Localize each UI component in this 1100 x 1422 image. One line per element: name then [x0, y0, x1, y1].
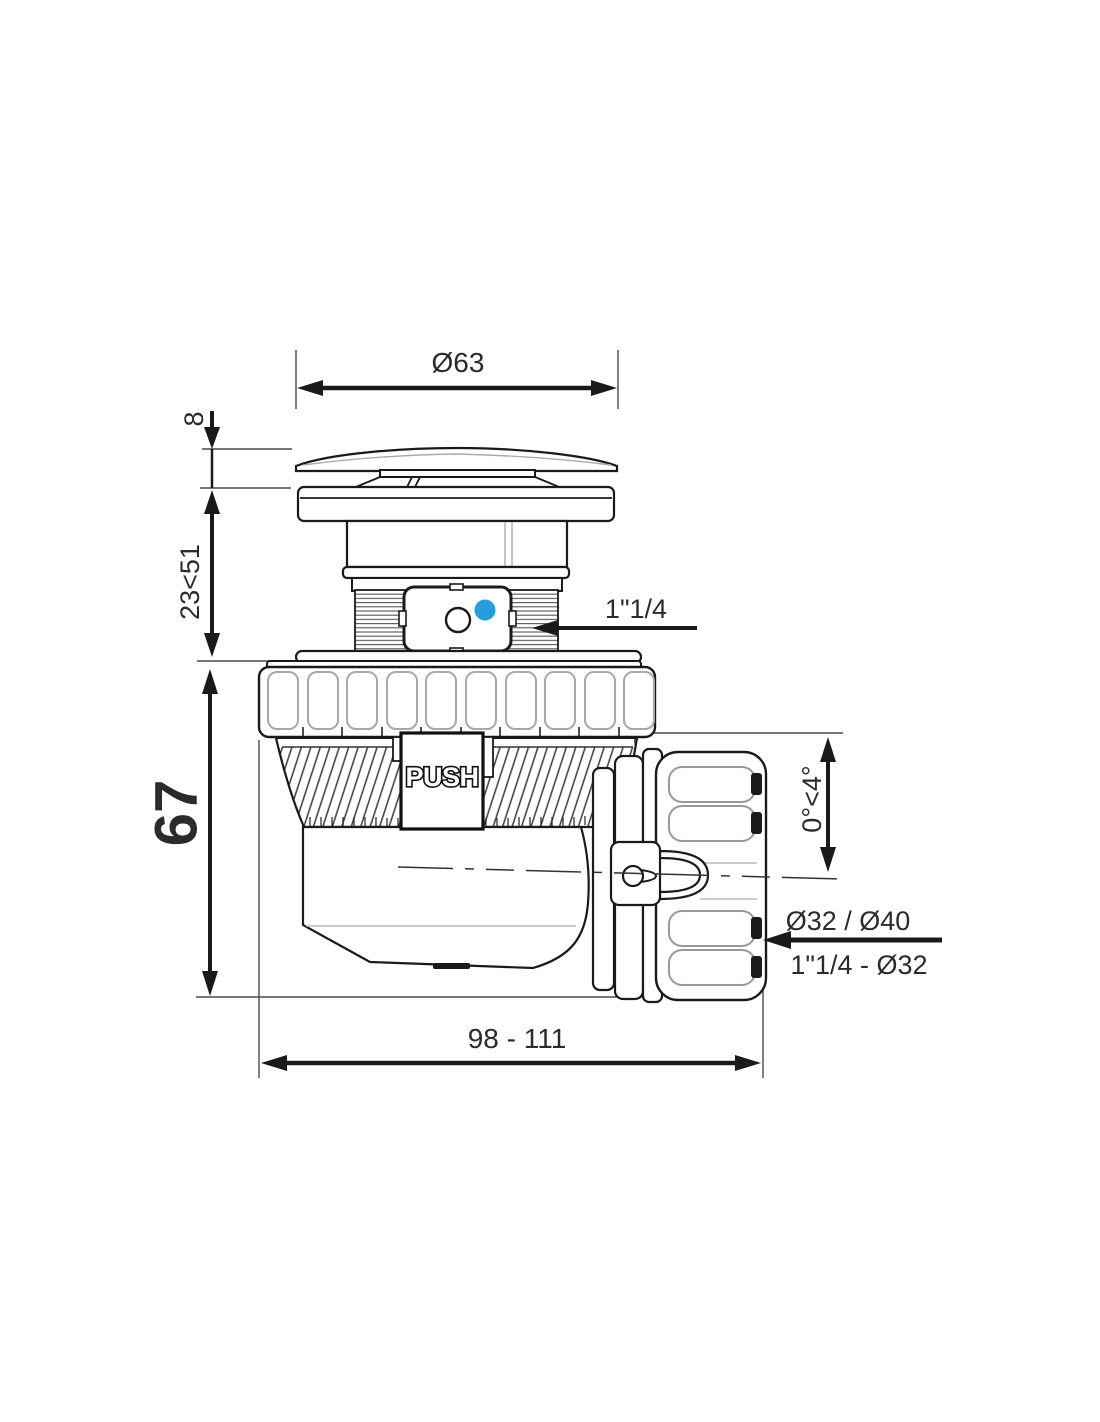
arrowhead-down-icon — [204, 427, 220, 449]
arrowhead-right-icon — [591, 380, 617, 396]
cap-stem-plate — [380, 470, 535, 477]
dim-cap-height-label: 8 — [179, 411, 209, 426]
keyhole-icon — [623, 866, 643, 886]
indicator-blue-dot — [475, 600, 496, 621]
dim-length-range: 98 - 111 — [261, 1023, 761, 1071]
dim-inlet-thread-label: 1"1/4 — [605, 594, 667, 624]
trap-drain-notch — [433, 963, 470, 969]
cap-dome — [296, 448, 617, 471]
lock-nut-group — [259, 651, 655, 737]
trap-body — [303, 827, 589, 968]
push-tab-group: PUSH — [393, 733, 493, 829]
dim-install-range: 23<51 — [175, 490, 220, 657]
technical-drawing-canvas: PUSH Ø63 — [0, 0, 1100, 1422]
push-label: PUSH — [405, 762, 478, 792]
indicator-notch-left — [399, 611, 406, 626]
indicator-notch-right — [509, 611, 516, 626]
indicator-plate-group — [399, 584, 516, 654]
dim-outlet-reduction-label: 1"1/4 - Ø32 — [790, 950, 927, 980]
outlet-group — [593, 749, 766, 1002]
dim-install-range-label: 23<51 — [175, 544, 205, 620]
riser-lip — [343, 567, 569, 578]
trap-body-group — [303, 827, 589, 969]
riser-body — [347, 521, 567, 567]
dim-body-height: 67 — [143, 669, 219, 996]
dim-outlet-angle-label: 0°<4° — [797, 765, 827, 832]
indicator-hole — [446, 608, 470, 632]
strainer-flange — [298, 487, 614, 521]
dim-outlet-diameters-label: Ø32 / Ø40 — [786, 906, 911, 936]
indicator-notch-top — [450, 584, 463, 590]
page: { "colors": { "accent": "#239fdc", "ink"… — [0, 0, 1100, 1422]
dim-cap-diameter-label: Ø63 — [432, 347, 485, 378]
dim-outlet-diameters: Ø32 / Ø40 1"1/4 - Ø32 — [763, 906, 942, 980]
dim-cap-diameter: Ø63 — [297, 347, 617, 396]
dim-length-range-label: 98 - 111 — [468, 1023, 567, 1054]
dim-body-height-label: 67 — [143, 780, 210, 847]
arrowhead-left-icon — [297, 380, 323, 396]
dim-outlet-angle: 0°<4° — [797, 737, 836, 872]
